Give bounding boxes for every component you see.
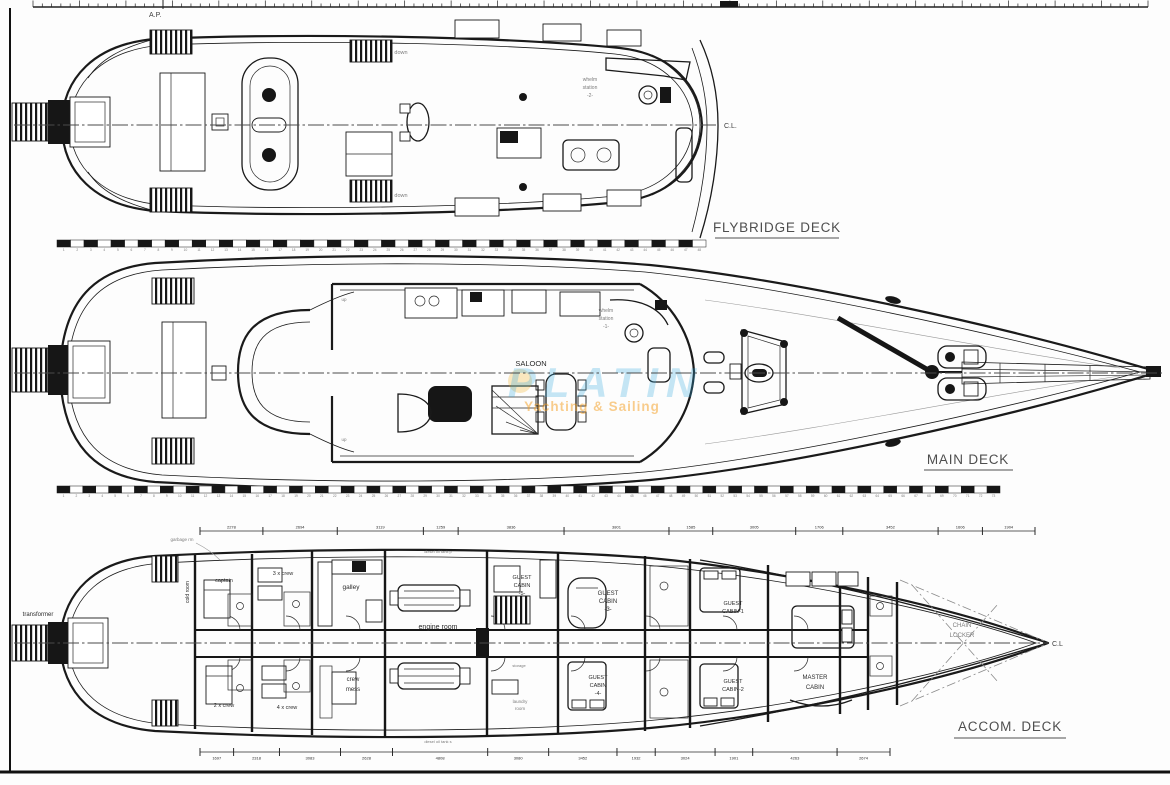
svg-text:5: 5 — [114, 494, 116, 498]
svg-text:11: 11 — [191, 494, 195, 498]
svg-text:19: 19 — [305, 248, 309, 252]
svg-text:45: 45 — [657, 248, 661, 252]
flybridge-deck-title: FLYBRIDGE DECK — [713, 220, 841, 235]
svg-text:30: 30 — [436, 494, 440, 498]
dimension-value: 2674 — [859, 756, 869, 761]
svg-text:24: 24 — [373, 248, 377, 252]
main-foredeck — [704, 295, 1161, 449]
svg-text:18: 18 — [281, 494, 285, 498]
svg-text:20: 20 — [319, 248, 323, 252]
svg-text:19: 19 — [294, 494, 298, 498]
main-aft-stairs-stbd — [152, 438, 194, 464]
svg-text:33: 33 — [495, 248, 499, 252]
svg-text:12: 12 — [204, 494, 208, 498]
svg-text:66: 66 — [901, 494, 905, 498]
helm-wheel-icon — [639, 86, 671, 104]
svg-text:58: 58 — [798, 494, 802, 498]
diagram-label: -1- — [603, 324, 609, 330]
flybridge-aft-stairs-stbd — [150, 188, 192, 212]
svg-text:55: 55 — [759, 494, 763, 498]
svg-text:9: 9 — [171, 248, 173, 252]
svg-text:43: 43 — [630, 248, 634, 252]
svg-text:8: 8 — [153, 494, 155, 498]
flybridge-deck-plan: C.L. downdownwhelmstation-2- FLYBRIDGE D… — [12, 20, 841, 238]
svg-text:16: 16 — [255, 494, 259, 498]
diagram-label: GUEST — [589, 675, 609, 681]
svg-text:68: 68 — [927, 494, 931, 498]
dimension-value: 1259 — [436, 525, 446, 530]
dimension-value: 4263 — [790, 756, 800, 761]
dimension-value: 3452 — [886, 525, 896, 530]
svg-text:69: 69 — [940, 494, 944, 498]
svg-text:38: 38 — [540, 494, 544, 498]
dimension-value: 3836 — [507, 525, 517, 530]
svg-text:30: 30 — [454, 248, 458, 252]
svg-text:17: 17 — [278, 248, 282, 252]
svg-text:48: 48 — [697, 248, 701, 252]
diagram-label: cold room — [185, 581, 191, 603]
svg-text:36: 36 — [535, 248, 539, 252]
diagram-label: mess — [346, 687, 360, 693]
diagram-label: LOCKER — [950, 633, 975, 639]
svg-text:22: 22 — [346, 248, 350, 252]
watermark-tagline: Yachting & Sailing — [524, 399, 660, 414]
svg-text:15: 15 — [243, 494, 247, 498]
dimension-value: 3801 — [612, 525, 622, 530]
svg-text:61: 61 — [837, 494, 841, 498]
svg-text:37: 37 — [527, 494, 531, 498]
diagram-label: 2 x crew — [214, 703, 235, 709]
flybridge-furniture — [160, 20, 692, 216]
diagram-label: garbage rm — [170, 537, 193, 542]
diagram-label: CHAIN — [953, 623, 972, 629]
main-deck-title: MAIN DECK — [927, 452, 1009, 467]
svg-text:17: 17 — [268, 494, 272, 498]
svg-text:14: 14 — [238, 248, 242, 252]
diagram-label: -4- — [595, 691, 602, 697]
svg-text:13: 13 — [224, 248, 228, 252]
svg-text:6: 6 — [127, 494, 129, 498]
svg-text:12: 12 — [211, 248, 215, 252]
svg-text:1: 1 — [63, 494, 65, 498]
svg-text:39: 39 — [576, 248, 580, 252]
svg-text:42: 42 — [616, 248, 620, 252]
svg-text:62: 62 — [850, 494, 854, 498]
main-deck-plan: PLATIN Yachting & Sailing SALOONwhelmsta… — [12, 256, 1162, 489]
accom-deck-title: ACCOM. DECK — [958, 719, 1062, 734]
svg-text:10: 10 — [178, 494, 182, 498]
guest-cabins — [494, 566, 740, 718]
svg-text:31: 31 — [449, 494, 453, 498]
svg-text:52: 52 — [720, 494, 724, 498]
diagram-label: crew — [347, 677, 360, 683]
flybridge-mid-stairs-stbd — [350, 180, 392, 202]
dimension-value: 4808 — [436, 756, 446, 761]
svg-text:8: 8 — [158, 248, 160, 252]
svg-text:41: 41 — [603, 248, 607, 252]
svg-text:47: 47 — [656, 494, 660, 498]
dimension-value: 3119 — [376, 525, 385, 530]
dimension-value: 3005 — [750, 525, 760, 530]
svg-text:11: 11 — [197, 248, 201, 252]
diagram-label: station — [599, 316, 614, 322]
foredeck-crane-arm — [838, 318, 930, 371]
svg-text:26: 26 — [385, 494, 389, 498]
svg-text:34: 34 — [488, 494, 492, 498]
dimension-value: 1585 — [686, 525, 696, 530]
svg-text:56: 56 — [772, 494, 776, 498]
svg-text:27: 27 — [414, 248, 418, 252]
svg-text:42: 42 — [591, 494, 595, 498]
ap-station-mark: A.P. — [149, 0, 738, 19]
svg-text:32: 32 — [462, 494, 466, 498]
svg-text:60: 60 — [824, 494, 828, 498]
dimension-value: 2694 — [296, 525, 306, 530]
svg-text:44: 44 — [617, 494, 621, 498]
svg-text:25: 25 — [372, 494, 376, 498]
diagram-label: 3 x crew — [273, 571, 294, 577]
svg-text:9: 9 — [166, 494, 168, 498]
accom-deck-plan: C.L transformergarbage rmcold roomcaptai… — [12, 525, 1066, 761]
svg-text:24: 24 — [359, 494, 363, 498]
svg-text:4: 4 — [103, 248, 105, 252]
svg-text:25: 25 — [386, 248, 390, 252]
svg-text:64: 64 — [876, 494, 880, 498]
svg-text:29: 29 — [441, 248, 445, 252]
top-scale-ruler — [33, 1, 1148, 8]
accom-cl-label: C.L — [1052, 641, 1063, 648]
svg-text:35: 35 — [522, 248, 526, 252]
svg-text:15: 15 — [251, 248, 255, 252]
dimension-value: 3452 — [578, 756, 588, 761]
diagram-label: captain — [215, 578, 233, 584]
diagram-label: up — [341, 297, 347, 302]
diagram-label: CABIN — [590, 683, 607, 689]
svg-text:7: 7 — [140, 494, 142, 498]
svg-text:26: 26 — [400, 248, 404, 252]
dimension-value: 1697 — [212, 756, 222, 761]
svg-text:72: 72 — [979, 494, 983, 498]
svg-text:73: 73 — [992, 494, 996, 498]
svg-text:6: 6 — [130, 248, 132, 252]
main-aft-stairs-port — [152, 278, 194, 304]
svg-text:48: 48 — [669, 494, 673, 498]
flybridge-mid-stairs-port — [350, 40, 392, 62]
flybridge-swim-platform — [12, 97, 110, 147]
svg-text:46: 46 — [670, 248, 674, 252]
flybridge-labels: downdownwhelmstation-2- — [394, 50, 597, 199]
flybridge-aft-stairs-port — [150, 30, 192, 54]
diagram-label: SALOON — [515, 359, 546, 368]
svg-text:3: 3 — [90, 248, 92, 252]
main-swim-platform — [12, 341, 110, 403]
diagram-label: CABIN-2 — [722, 687, 744, 693]
svg-text:21: 21 — [332, 248, 336, 252]
accom-aft-stairs-port — [152, 556, 178, 582]
svg-text:34: 34 — [508, 248, 512, 252]
diagram-label: diesel oil tank s — [424, 739, 451, 744]
svg-text:31: 31 — [468, 248, 472, 252]
svg-text:16: 16 — [265, 248, 269, 252]
svg-text:47: 47 — [684, 248, 688, 252]
main-frame-ruler: 1234567891011121314151617181920212223242… — [57, 486, 1000, 498]
dimension-value: 3024 — [681, 756, 691, 761]
dimension-value: 2318 — [252, 756, 262, 761]
svg-text:44: 44 — [643, 248, 647, 252]
diagram-label: CABIN — [514, 583, 531, 589]
svg-text:10: 10 — [184, 248, 188, 252]
svg-text:14: 14 — [230, 494, 234, 498]
diagram-label: 4 x crew — [277, 705, 298, 711]
dimension-value: 3080 — [514, 756, 524, 761]
svg-text:1: 1 — [63, 248, 65, 252]
diagram-label: GUEST — [598, 591, 619, 597]
deck-plan-drawing: A.P. — [0, 0, 1170, 785]
svg-text:2: 2 — [76, 248, 78, 252]
svg-text:21: 21 — [320, 494, 324, 498]
svg-text:28: 28 — [427, 248, 431, 252]
svg-text:22: 22 — [333, 494, 337, 498]
svg-text:27: 27 — [398, 494, 402, 498]
main-aft-deck — [162, 292, 354, 452]
svg-text:28: 28 — [410, 494, 414, 498]
svg-text:63: 63 — [863, 494, 867, 498]
diagram-label: room — [515, 706, 526, 711]
diagram-label: CABIN — [806, 685, 824, 691]
svg-text:51: 51 — [708, 494, 712, 498]
diagram-label: diesel oil tank p — [424, 549, 452, 554]
diagram-label: down — [394, 193, 407, 199]
diagram-label: whelm — [583, 77, 597, 83]
svg-text:70: 70 — [953, 494, 957, 498]
svg-text:7: 7 — [144, 248, 146, 252]
svg-text:59: 59 — [811, 494, 815, 498]
diagram-label: engine room — [419, 624, 458, 631]
diagram-label: -2- — [587, 93, 593, 99]
garbage-leader-line — [196, 543, 220, 560]
dimension-value: 1932 — [632, 756, 642, 761]
accom-dim-chain-bottom: 1697231830832628480830803452193230241901… — [200, 748, 890, 761]
diagram-label: -5- — [519, 591, 526, 597]
svg-text:40: 40 — [565, 494, 569, 498]
dimension-value: 2278 — [227, 525, 237, 530]
diagram-label: GUEST — [724, 601, 744, 607]
accom-dim-chain-top: 2278269431191259383638011585300517063452… — [200, 525, 1035, 536]
ap-label: A.P. — [149, 12, 161, 19]
dimension-value: 1706 — [815, 525, 825, 530]
diagram-label: down — [394, 50, 407, 56]
svg-text:38: 38 — [562, 248, 566, 252]
engine-room — [390, 585, 470, 689]
svg-text:23: 23 — [346, 494, 350, 498]
svg-text:43: 43 — [604, 494, 608, 498]
svg-text:46: 46 — [643, 494, 647, 498]
svg-text:18: 18 — [292, 248, 296, 252]
svg-text:2: 2 — [75, 494, 77, 498]
svg-text:49: 49 — [682, 494, 686, 498]
svg-text:39: 39 — [553, 494, 557, 498]
flybridge-cl-label: C.L. — [724, 123, 737, 130]
svg-text:71: 71 — [966, 494, 970, 498]
diagram-label: transformer — [23, 612, 54, 618]
svg-text:36: 36 — [514, 494, 518, 498]
dimension-value: 1606 — [956, 525, 966, 530]
svg-text:4: 4 — [101, 494, 103, 498]
svg-text:65: 65 — [888, 494, 892, 498]
diagram-label: whelm — [599, 308, 613, 314]
svg-text:67: 67 — [914, 494, 918, 498]
dimension-value: 2628 — [362, 756, 372, 761]
diagram-label: GUEST — [724, 679, 744, 685]
svg-text:54: 54 — [746, 494, 750, 498]
svg-text:5: 5 — [117, 248, 119, 252]
svg-text:45: 45 — [630, 494, 634, 498]
svg-text:29: 29 — [423, 494, 427, 498]
svg-text:35: 35 — [501, 494, 505, 498]
diagram-label: GUEST — [513, 575, 533, 581]
diagram-label: station — [583, 85, 598, 91]
drawing-canvas: A.P. — [0, 0, 1170, 785]
svg-text:41: 41 — [578, 494, 582, 498]
svg-text:37: 37 — [549, 248, 553, 252]
diagram-label: galley — [343, 584, 361, 591]
svg-text:40: 40 — [589, 248, 593, 252]
diagram-label: -3- — [604, 607, 611, 613]
svg-text:20: 20 — [307, 494, 311, 498]
flybridge-frame-ruler: 1234567891011121314151617181920212223242… — [57, 240, 706, 252]
svg-text:50: 50 — [695, 494, 699, 498]
svg-text:23: 23 — [359, 248, 363, 252]
svg-text:3: 3 — [88, 494, 90, 498]
dimension-value: 1901 — [729, 756, 739, 761]
diagram-label: laundry — [513, 699, 529, 704]
diagram-label: storage — [512, 663, 526, 668]
dimension-value: 1904 — [1004, 525, 1014, 530]
svg-text:32: 32 — [481, 248, 485, 252]
diagram-label: MASTER — [802, 675, 828, 681]
accom-aft-stairs-stbd — [152, 700, 178, 726]
diagram-label: up — [341, 437, 347, 442]
diagram-label: CABIN-1 — [722, 609, 744, 615]
diagram-label: CABIN — [599, 599, 617, 605]
svg-text:57: 57 — [785, 494, 789, 498]
svg-text:13: 13 — [217, 494, 221, 498]
dimension-value: 3083 — [306, 756, 316, 761]
svg-text:53: 53 — [733, 494, 737, 498]
svg-text:33: 33 — [475, 494, 479, 498]
